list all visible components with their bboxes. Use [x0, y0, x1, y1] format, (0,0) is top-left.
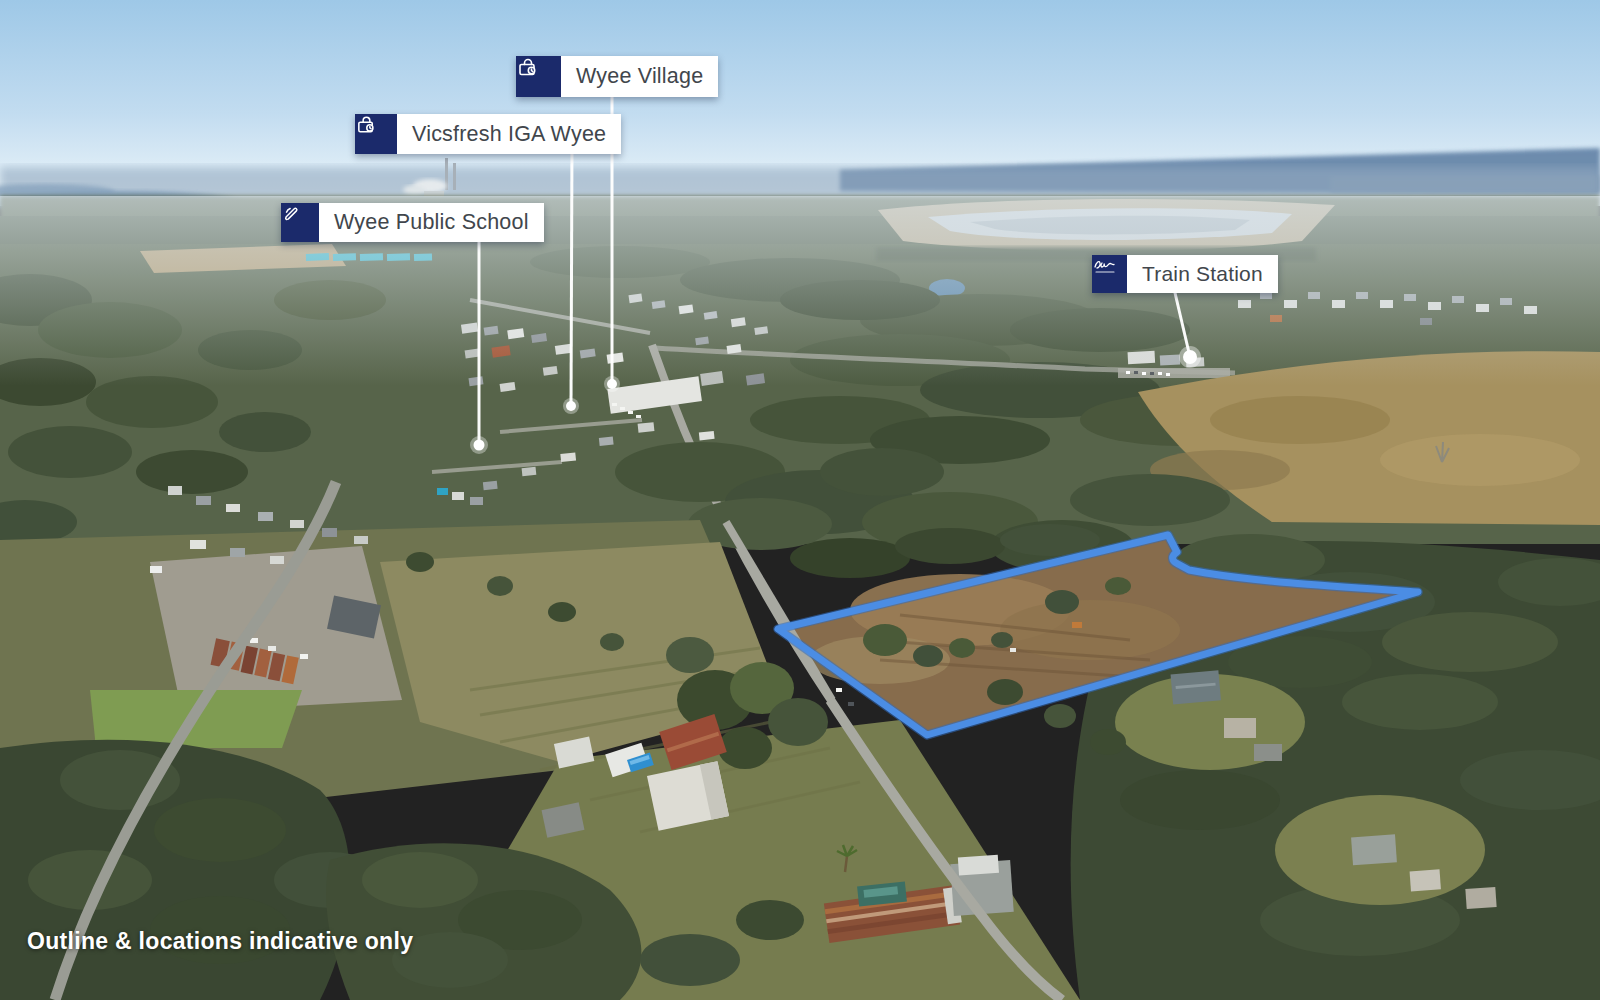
label-train-station: Train Station — [1092, 255, 1278, 293]
label-text-iga: Vicsfresh IGA Wyee — [397, 114, 621, 154]
shopping-bag-icon — [355, 114, 397, 154]
agency-logo-icon — [1092, 255, 1127, 293]
location-dot-iga-core — [566, 401, 576, 411]
label-vicsfresh-iga: Vicsfresh IGA Wyee — [355, 114, 621, 154]
location-dot-school-core — [474, 440, 485, 451]
property-outline — [778, 535, 1418, 735]
leader-line-iga — [571, 140, 572, 406]
pencil-icon — [281, 203, 319, 242]
property-outline-stroke — [778, 535, 1418, 735]
label-wyee-village: Wyee Village — [516, 56, 718, 97]
aerial-photo: Wyee Village Vicsfresh IGA Wyee Wyee Pub… — [0, 0, 1600, 1000]
label-wyee-public-school: Wyee Public School — [281, 203, 544, 242]
label-text-school: Wyee Public School — [319, 203, 544, 242]
label-text-station: Train Station — [1127, 255, 1278, 293]
annotation-layer — [0, 0, 1600, 1000]
disclaimer-text: Outline & locations indicative only — [27, 928, 413, 955]
shopping-bag-icon — [516, 56, 561, 97]
label-text-village: Wyee Village — [561, 56, 718, 97]
location-dot-village-core — [607, 379, 617, 389]
location-dot-station-core — [1183, 350, 1197, 364]
